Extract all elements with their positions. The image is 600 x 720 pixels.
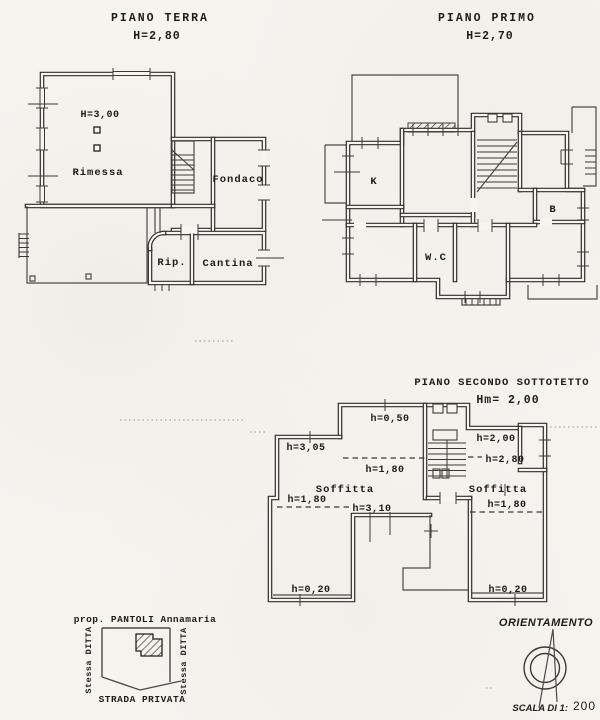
- primo-staircase: [477, 114, 517, 192]
- label-soffitta-right: Soffitta: [469, 484, 527, 496]
- terra-title: PIANO TERRA: [111, 12, 209, 25]
- secondo-title: PIANO SECONDO SOTTOTETTO: [414, 377, 589, 389]
- owner-label: prop. PANTOLI Annamaria: [74, 614, 217, 625]
- building-footprint: [136, 634, 162, 656]
- terra-terrace: [19, 206, 169, 291]
- neighbor-left-label: Stessa DITTA: [84, 626, 94, 694]
- primo-height: H=2,70: [466, 30, 513, 43]
- label-h200: h=2,00: [476, 433, 515, 445]
- plan-drawing: PIANO TERRA H=2,80: [0, 0, 600, 720]
- terra-ceiling-label: H=3,00: [80, 110, 119, 121]
- road-label: STRADA PRIVATA: [99, 694, 186, 705]
- label-h050: h=0,50: [370, 413, 409, 425]
- compass-icon: [524, 629, 566, 708]
- label-h180-center: h=1,80: [365, 464, 404, 476]
- floor-terra: PIANO TERRA H=2,80: [19, 12, 284, 291]
- room-wc: W.C: [425, 252, 447, 264]
- primo-title: PIANO PRIMO: [438, 12, 536, 25]
- floor-secondo: PIANO SECONDO SOTTOTETTO Hm= 2,00: [270, 377, 590, 606]
- label-h305: h=3,05: [286, 442, 325, 454]
- terra-pillars: [94, 127, 100, 151]
- room-rimessa: Rimessa: [72, 167, 123, 179]
- floor-plan-sheet: PIANO TERRA H=2,80: [0, 0, 600, 720]
- secondo-staircase: [428, 404, 466, 504]
- label-h280: h=2,80: [485, 454, 524, 466]
- site-plan: prop. PANTOLI Annamaria Stessa DITTA Ste…: [74, 614, 217, 705]
- orientation: ORIENTAMENTO SCALA DI 1: 200: [499, 617, 596, 714]
- room-bath: B: [549, 204, 556, 216]
- scale-value: 200: [573, 699, 596, 713]
- terra-labels: H=3,00 Rimessa Fondaco Rip. Cantina: [72, 110, 263, 270]
- room-fondaco: Fondaco: [212, 174, 263, 186]
- secondo-height: Hm= 2,00: [476, 394, 539, 407]
- terra-height: H=2,80: [133, 30, 180, 43]
- floor-primo: PIANO PRIMO H=2,70: [322, 12, 597, 305]
- room-rip: Rip.: [157, 257, 186, 269]
- label-h020-right: h=0,20: [488, 584, 527, 596]
- label-h180-right: h=1,80: [487, 499, 526, 511]
- neighbor-right-label: Stessa DITTA: [179, 627, 189, 695]
- secondo-terrace-lines: [273, 515, 543, 595]
- orientation-label: ORIENTAMENTO: [499, 617, 593, 629]
- scale-label: SCALA DI 1:: [512, 703, 568, 714]
- label-h020-left: h=0,20: [291, 584, 330, 596]
- room-cantina: Cantina: [202, 258, 253, 270]
- label-h180-left: h=1,80: [287, 494, 326, 506]
- label-h310: h=3,10: [352, 503, 391, 515]
- primo-walls: [348, 115, 583, 297]
- room-kitchen: K: [370, 176, 377, 188]
